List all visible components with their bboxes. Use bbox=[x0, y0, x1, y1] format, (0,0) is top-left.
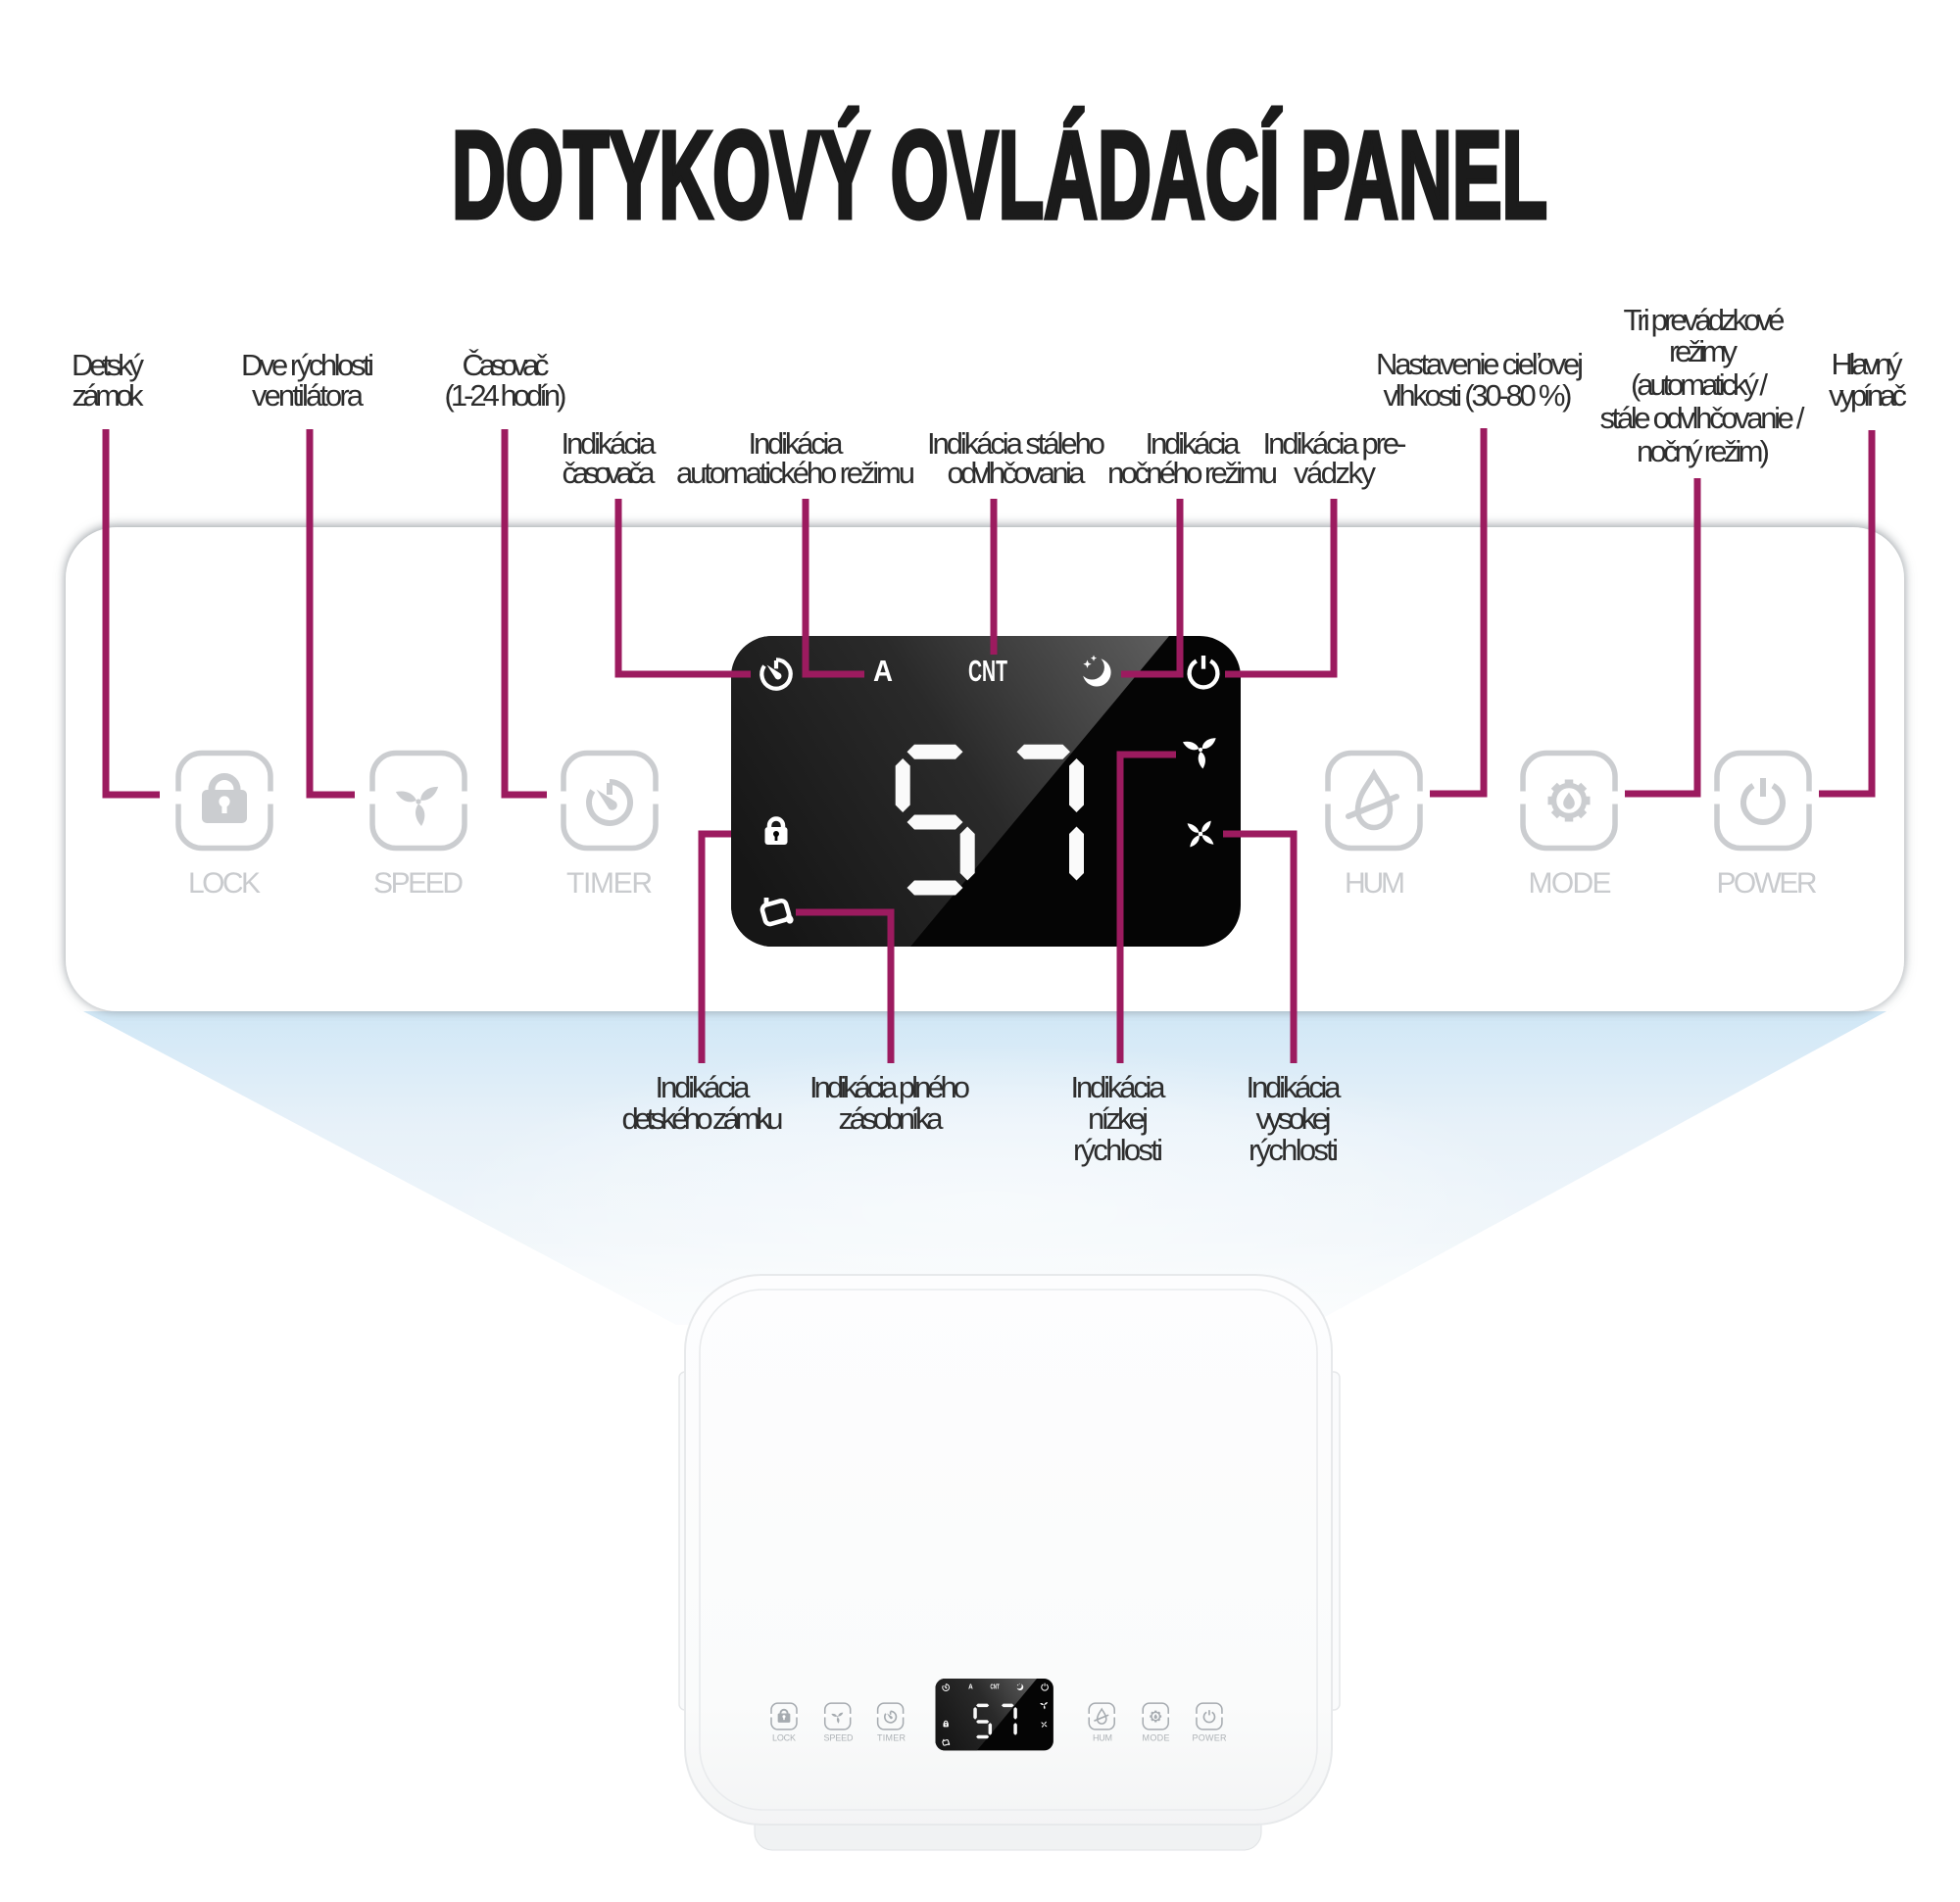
svg-text:Dve rýchlosti: Dve rýchlosti bbox=[241, 348, 374, 382]
svg-text:LOCK: LOCK bbox=[188, 867, 261, 900]
svg-text:stále odvlhčovanie /: stále odvlhčovanie / bbox=[1600, 401, 1805, 435]
svg-text:Tri prevádzkové: Tri prevádzkové bbox=[1624, 303, 1786, 337]
svg-text:(1-24 hodín): (1-24 hodín) bbox=[445, 378, 567, 413]
svg-text:Indikácia: Indikácia bbox=[1247, 1070, 1343, 1104]
svg-text:nízkej: nízkej bbox=[1088, 1101, 1149, 1136]
svg-text:POWER: POWER bbox=[1717, 867, 1818, 900]
svg-text:HUM: HUM bbox=[1093, 1733, 1112, 1743]
svg-text:MODE: MODE bbox=[1143, 1733, 1170, 1743]
svg-text:(automatický /: (automatický / bbox=[1631, 367, 1768, 402]
svg-text:LOCK: LOCK bbox=[772, 1733, 796, 1743]
svg-text:vádzky: vádzky bbox=[1294, 456, 1377, 490]
svg-text:vypínač: vypínač bbox=[1829, 378, 1907, 413]
svg-text:Hlavný: Hlavný bbox=[1832, 347, 1904, 381]
svg-text:detského zámku: detského zámku bbox=[622, 1101, 784, 1136]
svg-text:nočného režimu: nočného režimu bbox=[1107, 456, 1278, 490]
svg-text:Indikácia: Indikácia bbox=[656, 1070, 752, 1104]
svg-text:režimy: režimy bbox=[1669, 334, 1739, 368]
svg-text:TIMER: TIMER bbox=[877, 1733, 906, 1743]
svg-text:vlhkosti (30-80 %): vlhkosti (30-80 %) bbox=[1384, 378, 1573, 413]
svg-text:odvlhčovania: odvlhčovania bbox=[948, 456, 1087, 490]
svg-text:automatického režimu: automatického režimu bbox=[676, 456, 915, 490]
svg-text:rýchlosti: rýchlosti bbox=[1249, 1133, 1339, 1167]
svg-text:Nastavenie cieľovej: Nastavenie cieľovej bbox=[1376, 347, 1584, 381]
svg-text:Indikácia: Indikácia bbox=[1071, 1070, 1167, 1104]
svg-text:DOTYKOVÝ OVLÁDACÍ PANEL: DOTYKOVÝ OVLÁDACÍ PANEL bbox=[452, 106, 1547, 244]
svg-text:TIMER: TIMER bbox=[566, 867, 653, 900]
svg-text:Časovač: Časovač bbox=[463, 348, 550, 382]
svg-text:POWER: POWER bbox=[1193, 1733, 1228, 1743]
svg-text:SPEED: SPEED bbox=[373, 867, 464, 900]
svg-text:SPEED: SPEED bbox=[824, 1733, 855, 1743]
svg-text:nočný režim): nočný režim) bbox=[1637, 434, 1770, 468]
svg-text:vysokej: vysokej bbox=[1256, 1101, 1332, 1136]
svg-text:zámok: zámok bbox=[73, 378, 145, 413]
svg-text:Detský: Detský bbox=[72, 348, 145, 382]
svg-text:zásobníka: zásobníka bbox=[839, 1101, 945, 1136]
svg-text:časovača: časovača bbox=[563, 456, 657, 490]
svg-text:Indikácia plného: Indikácia plného bbox=[809, 1070, 970, 1104]
svg-text:rýchlosti: rýchlosti bbox=[1073, 1133, 1163, 1167]
svg-text:MODE: MODE bbox=[1529, 867, 1612, 900]
svg-text:ventilátora: ventilátora bbox=[252, 378, 365, 413]
svg-text:HUM: HUM bbox=[1345, 867, 1405, 900]
